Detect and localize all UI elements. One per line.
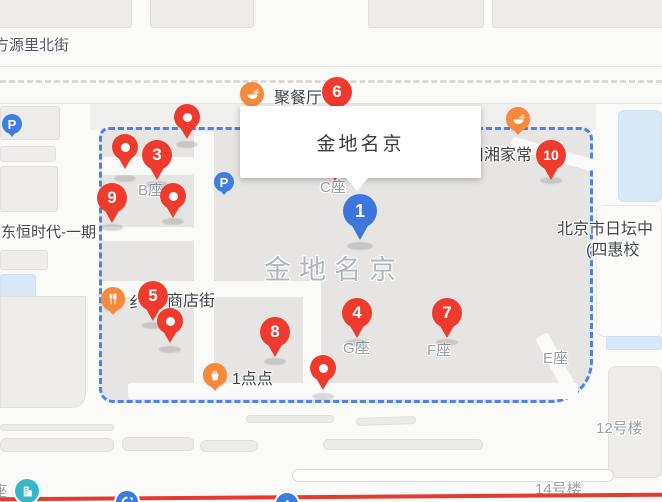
bowl-chopsticks-icon xyxy=(511,112,526,127)
road-median xyxy=(122,437,194,451)
pin-shadow xyxy=(436,339,458,346)
parking-icon[interactable]: P xyxy=(2,114,22,134)
drink-cup-icon xyxy=(208,368,222,382)
map-pin-dot[interactable] xyxy=(160,183,186,209)
metro-station-icon[interactable] xyxy=(114,489,140,502)
restaurant-icon[interactable] xyxy=(240,82,264,106)
map-pin-6[interactable]: 6 xyxy=(322,77,352,107)
map-pin-dot[interactable] xyxy=(310,355,336,381)
restaurant-utensils-icon[interactable] xyxy=(101,287,125,311)
road-median xyxy=(0,424,114,431)
pin-shadow xyxy=(176,141,198,148)
road-edge xyxy=(0,66,662,67)
poi-label-jucanting[interactable]: 聚餐厅 xyxy=(274,84,322,108)
pin-shadow xyxy=(312,393,334,400)
label-ritan-line2: (四惠校 xyxy=(586,236,639,260)
restaurant-icon[interactable] xyxy=(506,107,530,131)
map-pin-1-selected[interactable]: 1 xyxy=(343,194,377,228)
pin-shadow xyxy=(347,242,373,250)
road-median xyxy=(200,440,258,452)
pin-shadow xyxy=(101,224,123,231)
building-block xyxy=(0,166,58,212)
map-pin-9[interactable]: 9 xyxy=(97,183,127,213)
pin-shadow xyxy=(264,358,286,365)
road-median xyxy=(246,415,334,423)
map-pin-7[interactable]: 7 xyxy=(432,298,462,328)
internal-road xyxy=(194,131,214,397)
building-block xyxy=(0,250,48,270)
complex-name-label: 金地名京 xyxy=(264,248,404,287)
road-median xyxy=(0,438,114,452)
internal-road xyxy=(128,383,578,399)
pin-shadow xyxy=(346,339,368,346)
map-canvas[interactable]: 方源里北街 东恒时代-一期 北京市日坛中 (四惠校 12号楼 14号楼 座 金地… xyxy=(0,0,662,502)
map-pin-3[interactable]: 3 xyxy=(142,140,172,170)
building-block-blue xyxy=(618,110,662,202)
info-window[interactable]: 金地名京 xyxy=(240,106,481,178)
map-pin-dot[interactable] xyxy=(112,134,138,160)
map-pin-8[interactable]: 8 xyxy=(260,317,290,347)
metro-glyph-icon xyxy=(281,498,294,502)
metro-swirl-icon xyxy=(120,495,135,502)
label-building-12: 12号楼 xyxy=(596,417,643,438)
area-label-dongheng: 东恒时代-一期 xyxy=(1,221,96,242)
block-label-e: E座 xyxy=(543,347,568,368)
street-label-fangyuanli: 方源里北街 xyxy=(0,34,69,55)
parking-icon[interactable]: P xyxy=(214,172,234,192)
building-block xyxy=(0,296,86,408)
metro-entrance-icon[interactable] xyxy=(274,491,300,502)
building-block xyxy=(150,0,254,28)
fork-knife-icon xyxy=(106,292,120,306)
road-median xyxy=(356,416,416,426)
building-block xyxy=(0,0,132,28)
pin-shadow xyxy=(162,218,184,225)
building-block xyxy=(0,146,56,162)
pin-shadow xyxy=(159,346,181,353)
building-block xyxy=(368,0,484,28)
map-pin-dot[interactable] xyxy=(174,104,200,130)
building-block xyxy=(492,0,662,28)
poi-label-shopstreet[interactable]: 商店街 xyxy=(167,287,215,311)
info-window-title: 金地名京 xyxy=(316,129,404,156)
map-pin-10[interactable]: 10 xyxy=(536,140,566,170)
road-median xyxy=(323,439,483,450)
poi-label-yidiandian[interactable]: 1点点 xyxy=(232,365,273,389)
building-poi-icon[interactable] xyxy=(13,477,41,502)
map-pin-4[interactable]: 4 xyxy=(342,298,372,328)
milk-tea-icon[interactable] xyxy=(203,363,227,387)
pin-shadow xyxy=(114,175,136,182)
highlighted-road-line xyxy=(0,493,662,502)
building-icon xyxy=(20,484,35,499)
building-block-blue xyxy=(606,336,662,350)
bowl-chopsticks-icon xyxy=(245,87,260,102)
map-pin-5[interactable]: 5 xyxy=(138,281,168,311)
